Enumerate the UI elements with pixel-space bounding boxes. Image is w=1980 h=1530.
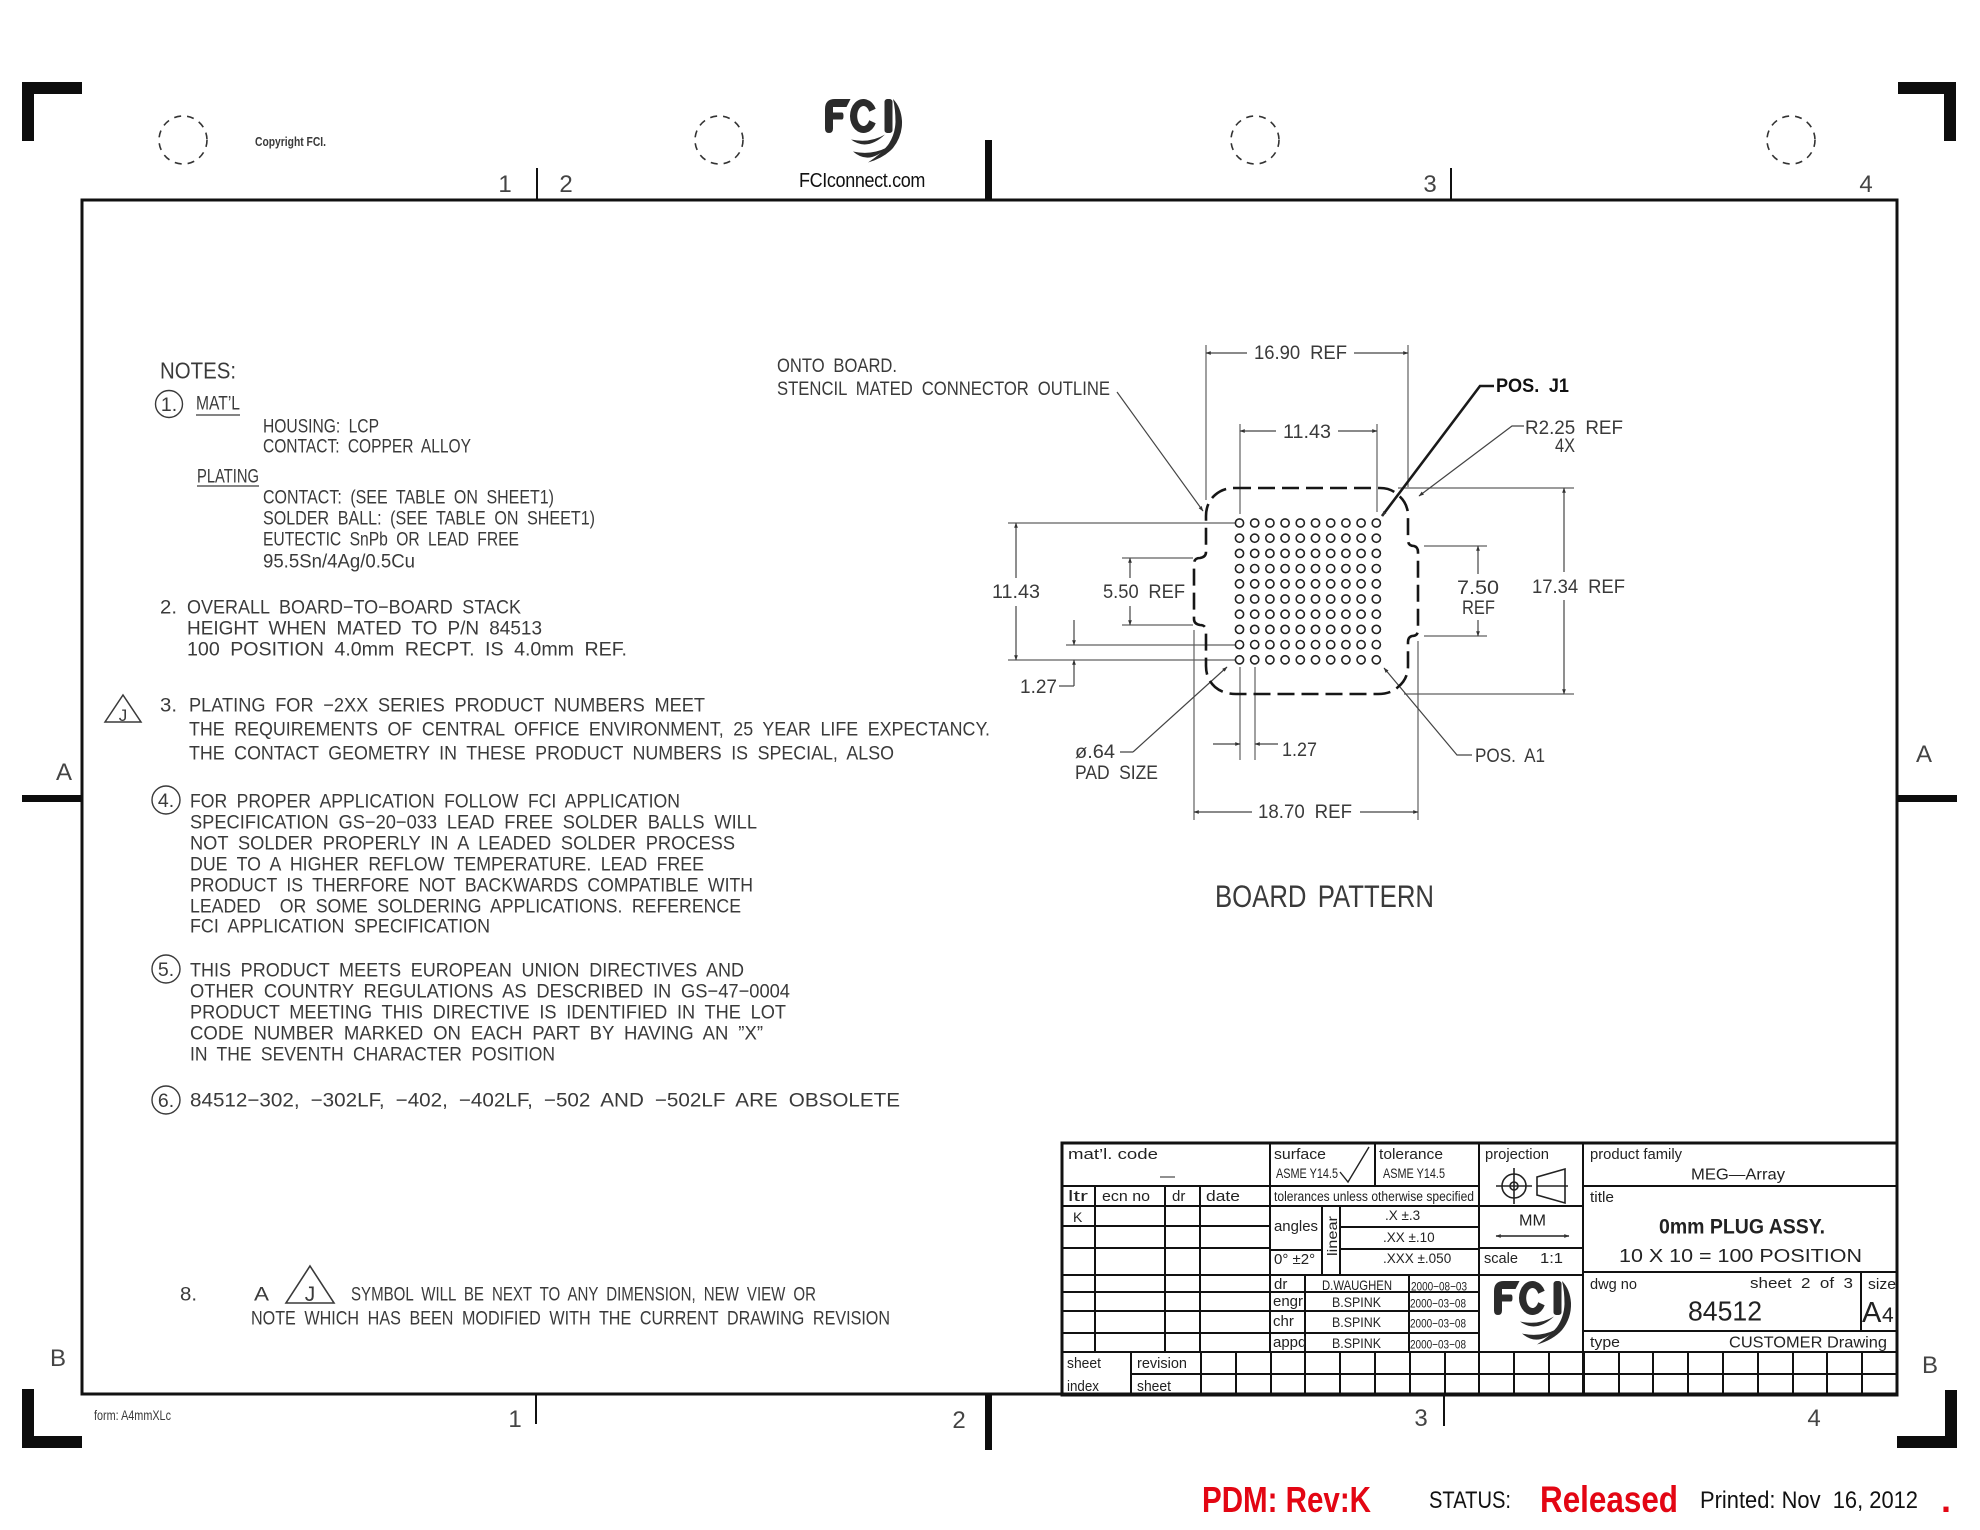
svg-text:2: 2 — [559, 171, 572, 198]
svg-text:ø.64: ø.64 — [1075, 741, 1115, 763]
svg-text:3: 3 — [1423, 171, 1436, 198]
svg-text:ltr: ltr — [1068, 1188, 1088, 1205]
svg-text:dr: dr — [1172, 1188, 1185, 1205]
svg-text:revision: revision — [1137, 1355, 1187, 1372]
svg-text:angles: angles — [1274, 1218, 1318, 1235]
svg-text:chr: chr — [1273, 1313, 1294, 1330]
svg-text:index: index — [1067, 1378, 1099, 1395]
svg-text:B.SPINK: B.SPINK — [1332, 1314, 1382, 1330]
svg-text:10 X 10 = 100 POSITION: 10 X 10 = 100 POSITION — [1619, 1246, 1862, 1266]
svg-text:100 POSITION 4.0mm RECPT. IS 4: 100 POSITION 4.0mm RECPT. IS 4.0mm REF. — [187, 638, 627, 660]
svg-text:CONTACT: (SEE TABLE ON SHEET1): CONTACT: (SEE TABLE ON SHEET1) — [263, 486, 554, 508]
svg-text:1: 1 — [508, 1406, 521, 1433]
svg-text:B: B — [1922, 1352, 1938, 1379]
svg-text:OTHER COUNTRY REGULATIONS AS D: OTHER COUNTRY REGULATIONS AS DESCRIBED I… — [190, 980, 790, 1002]
svg-text:0mm PLUG ASSY.: 0mm PLUG ASSY. — [1659, 1215, 1825, 1238]
svg-text:B: B — [50, 1345, 66, 1372]
svg-text:4.: 4. — [158, 790, 174, 812]
svg-text:ONTO BOARD.: ONTO BOARD. — [777, 355, 897, 377]
svg-text:POS. A1: POS. A1 — [1475, 745, 1545, 767]
svg-text:A: A — [56, 759, 72, 786]
svg-text:ecn no: ecn no — [1102, 1188, 1150, 1205]
svg-text:—: — — [1160, 1168, 1175, 1185]
svg-text:LEADED OR SOME SOLDERING APPL: LEADED OR SOME SOLDERING APPLICATIONS. R… — [190, 895, 741, 917]
svg-text:OVERALL BOARD−TO−BOARD STACK: OVERALL BOARD−TO−BOARD STACK — [187, 596, 521, 618]
svg-text:tolerance: tolerance — [1379, 1146, 1443, 1163]
svg-text:surface: surface — [1274, 1146, 1326, 1163]
svg-text:4: 4 — [1859, 171, 1872, 198]
svg-text:J: J — [305, 1283, 316, 1306]
svg-text:type: type — [1590, 1334, 1620, 1351]
svg-text:3.: 3. — [160, 694, 177, 716]
svg-text:IN THE SEVENTH CHARACTER POSIT: IN THE SEVENTH CHARACTER POSITION — [190, 1043, 555, 1065]
svg-text:1.: 1. — [161, 394, 177, 416]
svg-text:DUE TO A HIGHER REFLOW TEMPERA: DUE TO A HIGHER REFLOW TEMPERATURE. LEAD… — [190, 853, 704, 875]
svg-text:linear: linear — [1325, 1215, 1340, 1256]
svg-text:8.: 8. — [180, 1283, 197, 1305]
svg-text:SYMBOL WILL BE NEXT TO ANY DIM: SYMBOL WILL BE NEXT TO ANY DIMENSION, NE… — [351, 1283, 816, 1305]
svg-text:1.27: 1.27 — [1282, 739, 1317, 761]
svg-text:FOR PROPER APPLICATION FOLLOW: FOR PROPER APPLICATION FOLLOW FCI APPLIC… — [190, 790, 680, 812]
svg-text:18.70 REF: 18.70 REF — [1258, 801, 1352, 823]
svg-text:95.5Sn/4Ag/0.5Cu: 95.5Sn/4Ag/0.5Cu — [263, 550, 415, 572]
svg-text:PDM: Rev:K: PDM: Rev:K — [1202, 1479, 1371, 1520]
svg-text:B.SPINK: B.SPINK — [1332, 1335, 1382, 1351]
svg-text:ASME Y14.5: ASME Y14.5 — [1276, 1165, 1338, 1181]
svg-text:1: 1 — [498, 171, 511, 198]
svg-text:engr: engr — [1273, 1293, 1303, 1310]
svg-text:17.34 REF: 17.34 REF — [1532, 576, 1625, 598]
svg-text:2: 2 — [952, 1407, 965, 1434]
svg-text:1:1: 1:1 — [1540, 1250, 1563, 1267]
svg-text:size: size — [1868, 1276, 1896, 1293]
svg-text:.XX ±.10: .XX ±.10 — [1383, 1230, 1435, 1245]
svg-text:BOARD PATTERN: BOARD PATTERN — [1215, 878, 1434, 914]
svg-text:Copyright FCI.: Copyright FCI. — [255, 134, 326, 149]
svg-text:4X: 4X — [1555, 435, 1575, 457]
svg-text:ASME Y14.5: ASME Y14.5 — [1383, 1165, 1445, 1181]
svg-text:84512: 84512 — [1688, 1295, 1762, 1326]
svg-text:CUSTOMER Drawing: CUSTOMER Drawing — [1729, 1335, 1887, 1352]
svg-text:POS. J1: POS. J1 — [1496, 375, 1569, 397]
svg-text:3: 3 — [1414, 1405, 1427, 1432]
svg-text:.X ±.3: .X ±.3 — [1385, 1208, 1420, 1223]
svg-text:THIS PRODUCT MEETS EUROPEAN UN: THIS PRODUCT MEETS EUROPEAN UNION DIRECT… — [190, 959, 744, 981]
svg-text:K: K — [1073, 1209, 1083, 1225]
svg-text:FCIconnect.com: FCIconnect.com — [799, 170, 925, 192]
svg-text:PLATING: PLATING — [197, 465, 259, 487]
svg-text:THE REQUIREMENTS OF CENTRAL OF: THE REQUIREMENTS OF CENTRAL OFFICE ENVIR… — [189, 718, 990, 740]
svg-text:MM: MM — [1519, 1213, 1546, 1230]
svg-text:16.90 REF: 16.90 REF — [1254, 342, 1347, 364]
svg-text:D.WAUGHEN: D.WAUGHEN — [1322, 1277, 1392, 1293]
svg-text:.: . — [1941, 1479, 1951, 1520]
svg-text:EUTECTIC SnPb OR LEAD FREE: EUTECTIC SnPb OR LEAD FREE — [263, 528, 519, 550]
svg-text:2000−03−08: 2000−03−08 — [1410, 1317, 1466, 1331]
svg-text:STATUS:: STATUS: — [1429, 1487, 1511, 1514]
svg-text:sheet: sheet — [1067, 1355, 1102, 1372]
svg-text:2000−03−08: 2000−03−08 — [1410, 1338, 1466, 1352]
svg-text:MAT’L: MAT’L — [196, 392, 240, 414]
svg-text:REF: REF — [1462, 597, 1495, 619]
svg-text:sheet 2 of 3: sheet 2 of 3 — [1750, 1275, 1853, 1292]
svg-text:5.50 REF: 5.50 REF — [1103, 581, 1185, 603]
svg-text:A: A — [1862, 1297, 1882, 1329]
svg-text:Released: Released — [1540, 1479, 1678, 1520]
svg-text:B.SPINK: B.SPINK — [1332, 1294, 1382, 1310]
svg-text:A: A — [254, 1283, 269, 1305]
svg-text:4: 4 — [1882, 1304, 1894, 1327]
svg-text:PRODUCT MEETING THIS DIRECTIVE: PRODUCT MEETING THIS DIRECTIVE IS IDENTI… — [190, 1001, 786, 1023]
svg-text:84512−302, −302LF, −402, −402L: 84512−302, −302LF, −402, −402LF, −502 AN… — [190, 1089, 900, 1111]
svg-text:MEG—Array: MEG—Array — [1691, 1167, 1785, 1184]
svg-text:A: A — [1916, 741, 1932, 768]
svg-text:4: 4 — [1807, 1405, 1820, 1432]
svg-text:J: J — [119, 706, 128, 725]
svg-text:form: A4mmXLc: form: A4mmXLc — [94, 1408, 171, 1423]
svg-text:projection: projection — [1485, 1146, 1549, 1163]
svg-text:11.43: 11.43 — [992, 581, 1040, 603]
svg-text:CODE NUMBER MARKED ON EACH PAR: CODE NUMBER MARKED ON EACH PART BY HAVIN… — [190, 1022, 763, 1044]
svg-text:title: title — [1590, 1189, 1614, 1206]
svg-text:0° ±2°: 0° ±2° — [1274, 1251, 1315, 1268]
svg-text:sheet: sheet — [1137, 1378, 1172, 1395]
svg-text:tolerances unless otherwise sp: tolerances unless otherwise specified — [1274, 1189, 1474, 1204]
svg-text:mat’l. code: mat’l. code — [1068, 1146, 1158, 1163]
svg-text:scale: scale — [1484, 1250, 1518, 1267]
svg-text:HEIGHT WHEN MATED TO P/N 84513: HEIGHT WHEN MATED TO P/N 84513 — [187, 617, 542, 639]
svg-text:7.50: 7.50 — [1457, 577, 1499, 599]
svg-text:HOUSING: LCP: HOUSING: LCP — [263, 415, 379, 437]
svg-text:STENCIL MATED CONNECTOR OUTLIN: STENCIL MATED CONNECTOR OUTLINE — [777, 378, 1110, 400]
svg-text:.XXX ±.050: .XXX ±.050 — [1383, 1251, 1451, 1266]
svg-text:dr: dr — [1274, 1276, 1287, 1293]
svg-text:date: date — [1206, 1188, 1240, 1205]
svg-text:PLATING FOR −2XX SERIES PRODUC: PLATING FOR −2XX SERIES PRODUCT NUMBERS … — [189, 694, 705, 716]
svg-text:SPECIFICATION GS−20−033 LEAD F: SPECIFICATION GS−20−033 LEAD FREE SOLDER… — [190, 811, 757, 833]
svg-text:6.: 6. — [158, 1090, 174, 1112]
svg-text:2000−03−08: 2000−03−08 — [1410, 1297, 1466, 1311]
svg-text:product family: product family — [1590, 1146, 1682, 1163]
svg-text:PAD SIZE: PAD SIZE — [1075, 762, 1158, 784]
svg-text:dwg no: dwg no — [1590, 1276, 1637, 1293]
svg-text:5.: 5. — [158, 959, 174, 981]
svg-text:Printed: Nov 16, 2012: Printed: Nov 16, 2012 — [1700, 1487, 1918, 1514]
svg-text:NOTE WHICH HAS BEEN MODIFIED W: NOTE WHICH HAS BEEN MODIFIED WITH THE CU… — [251, 1307, 890, 1329]
svg-text:SOLDER BALL: (SEE TABLE ON SHE: SOLDER BALL: (SEE TABLE ON SHEET1) — [263, 507, 595, 529]
svg-text:CONTACT: COPPER ALLOY: CONTACT: COPPER ALLOY — [263, 435, 471, 457]
svg-text:1.27: 1.27 — [1020, 676, 1057, 698]
svg-text:11.43: 11.43 — [1283, 421, 1331, 443]
svg-text:PRODUCT IS THERFORE NOT BACKWA: PRODUCT IS THERFORE NOT BACKWARDS COMPAT… — [190, 874, 753, 896]
svg-text:2.: 2. — [160, 596, 177, 618]
svg-text:NOT SOLDER PROPERLY IN A LEADE: NOT SOLDER PROPERLY IN A LEADED SOLDER P… — [190, 832, 735, 854]
svg-text:2000−08−03: 2000−08−03 — [1411, 1280, 1467, 1294]
svg-text:THE CONTACT GEOMETRY IN THESE: THE CONTACT GEOMETRY IN THESE PRODUCT NU… — [189, 742, 894, 764]
svg-text:NOTES:: NOTES: — [160, 357, 236, 383]
svg-text:FCI APPLICATION SPECIFICATION: FCI APPLICATION SPECIFICATION — [190, 915, 490, 937]
svg-text:appd: appd — [1273, 1334, 1306, 1351]
